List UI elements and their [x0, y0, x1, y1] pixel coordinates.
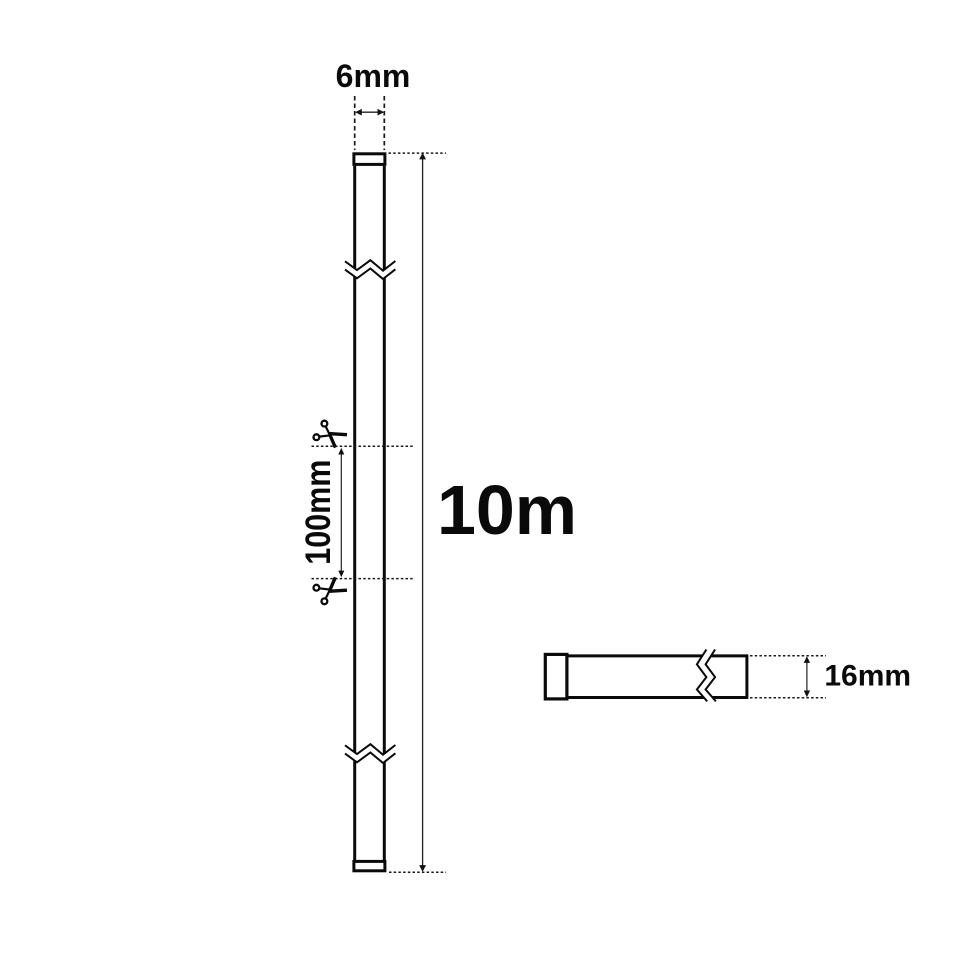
- svg-text:10m: 10m: [437, 471, 577, 549]
- svg-text:16mm: 16mm: [824, 660, 911, 693]
- svg-text:6mm: 6mm: [336, 58, 411, 94]
- svg-text:100mm: 100mm: [298, 460, 337, 565]
